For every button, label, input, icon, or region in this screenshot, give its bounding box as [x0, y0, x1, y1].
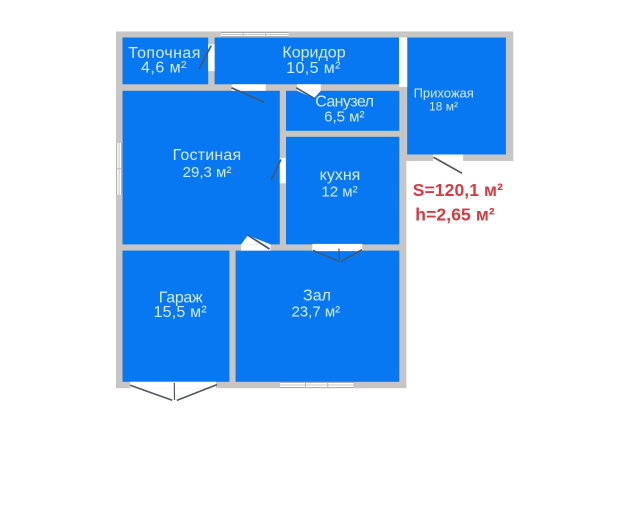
svg-text:6,5 м²: 6,5 м²	[324, 109, 364, 126]
svg-text:29,3 м²: 29,3 м²	[183, 164, 232, 181]
svg-text:15,5 м²: 15,5 м²	[154, 304, 208, 321]
svg-text:12 м²: 12 м²	[321, 184, 357, 201]
svg-text:S=120,1 м²: S=120,1 м²	[413, 180, 503, 200]
svg-text:23,7 м²: 23,7 м²	[291, 304, 340, 321]
svg-text:4,6 м²: 4,6 м²	[141, 59, 187, 76]
svg-text:10,5 м²: 10,5 м²	[286, 60, 341, 77]
svg-text:18 м²: 18 м²	[429, 100, 458, 114]
svg-text:Зал: Зал	[303, 288, 331, 305]
svg-text:Прихожая: Прихожая	[414, 86, 474, 101]
svg-text:Гостиная: Гостиная	[173, 147, 242, 164]
svg-text:Коридор: Коридор	[282, 44, 345, 61]
svg-text:h=2,65 м²: h=2,65 м²	[415, 205, 495, 225]
svg-text:кухня: кухня	[320, 167, 361, 184]
